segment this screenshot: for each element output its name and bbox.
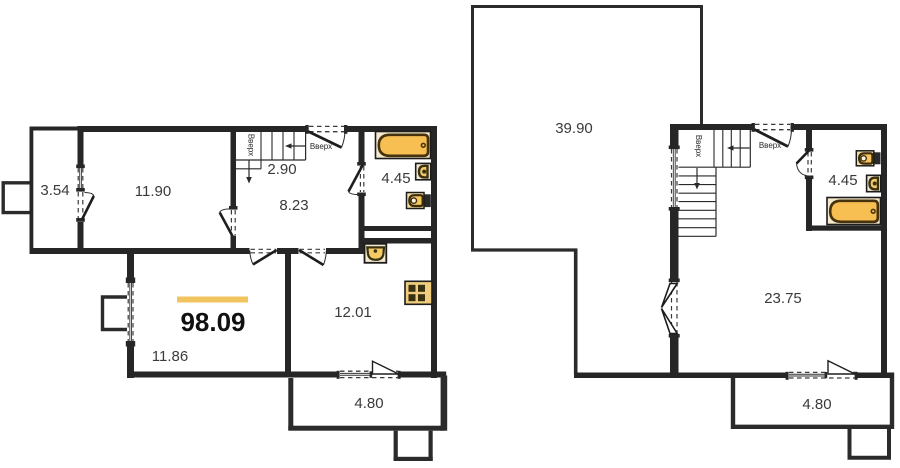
svg-text:4.45: 4.45 — [828, 172, 857, 189]
svg-text:2.90: 2.90 — [267, 161, 296, 178]
svg-text:4.45: 4.45 — [381, 170, 410, 187]
svg-text:8.23: 8.23 — [279, 197, 308, 214]
svg-text:Вверх: Вверх — [247, 134, 256, 156]
svg-text:12.01: 12.01 — [334, 304, 372, 321]
svg-text:Вверх: Вверх — [694, 135, 703, 157]
svg-text:39.90: 39.90 — [555, 120, 593, 137]
svg-text:4.80: 4.80 — [354, 395, 383, 412]
svg-text:98.09: 98.09 — [180, 307, 245, 337]
svg-text:Вверх: Вверх — [310, 142, 332, 151]
svg-text:11.90: 11.90 — [135, 183, 171, 200]
svg-text:11.86: 11.86 — [152, 348, 188, 365]
svg-text:3.54: 3.54 — [40, 182, 69, 199]
svg-text:23.75: 23.75 — [764, 290, 802, 307]
svg-text:4.80: 4.80 — [802, 396, 831, 413]
svg-text:Вверх: Вверх — [759, 141, 781, 150]
